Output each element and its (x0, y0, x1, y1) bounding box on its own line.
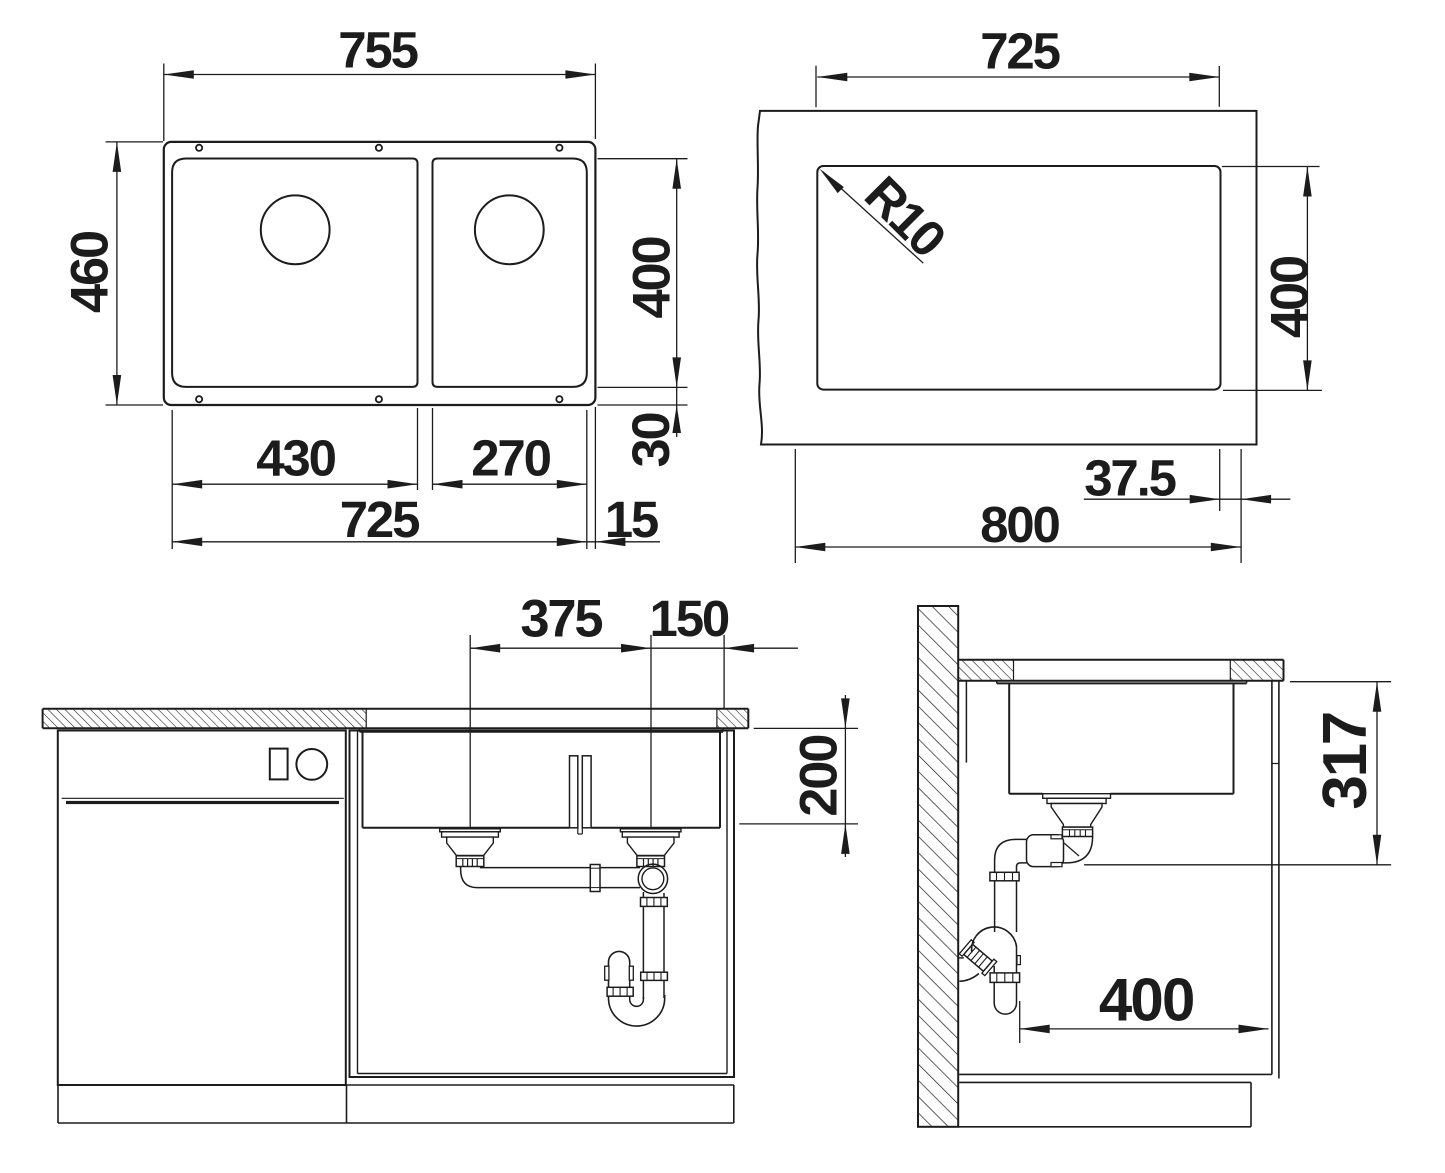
svg-text:755: 755 (338, 21, 417, 78)
svg-text:400: 400 (622, 237, 681, 319)
svg-text:15: 15 (605, 491, 658, 548)
svg-text:725: 725 (340, 491, 419, 548)
svg-text:460: 460 (60, 231, 119, 313)
svg-text:400: 400 (1260, 256, 1319, 338)
svg-text:317: 317 (1311, 713, 1380, 810)
svg-text:375: 375 (520, 590, 602, 649)
svg-text:200: 200 (789, 735, 848, 817)
svg-text:30: 30 (622, 413, 681, 468)
svg-text:725: 725 (980, 22, 1059, 79)
svg-text:430: 430 (256, 429, 335, 486)
svg-text:800: 800 (980, 496, 1059, 553)
svg-text:150: 150 (650, 590, 729, 647)
svg-text:270: 270 (471, 429, 550, 486)
svg-text:400: 400 (1099, 967, 1194, 1034)
svg-text:37.5: 37.5 (1084, 450, 1175, 507)
